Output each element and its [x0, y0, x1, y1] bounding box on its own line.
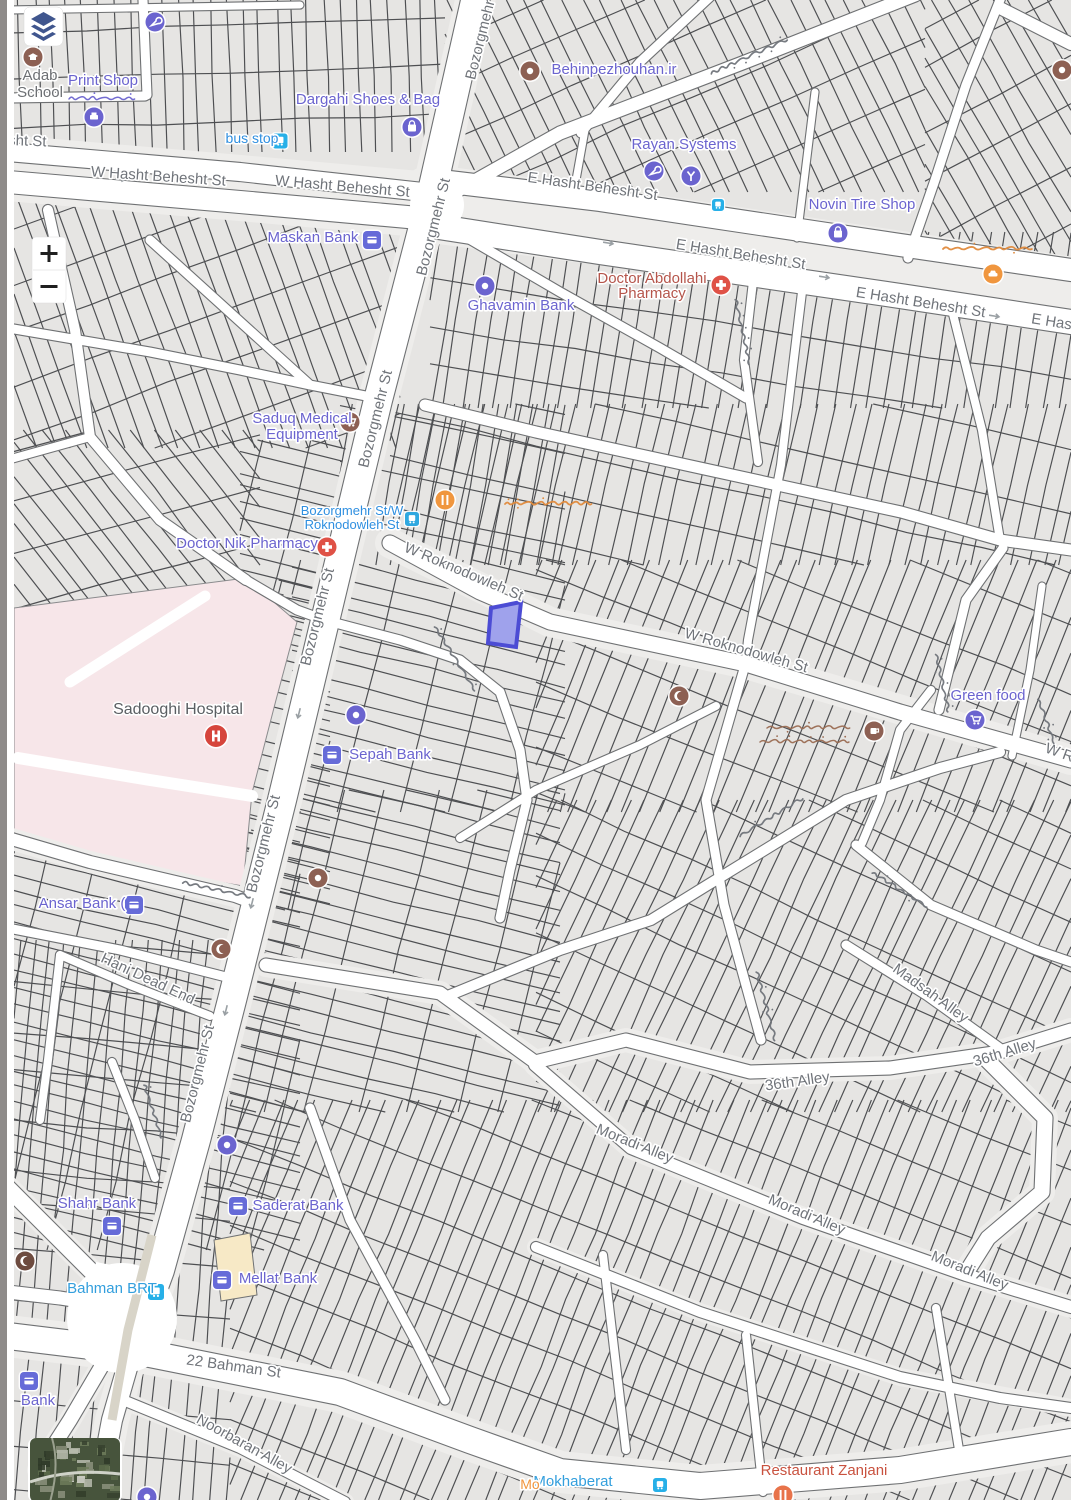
svg-text:Ghavamin Bank: Ghavamin Bank — [468, 297, 575, 314]
svg-text:Bank: Bank — [21, 1392, 56, 1409]
svg-text:Saderat Bank: Saderat Bank — [253, 1197, 344, 1214]
svg-text:Mellat Bank: Mellat Bank — [239, 1270, 318, 1287]
svg-text:Roknodowleh St: Roknodowleh St — [305, 517, 400, 532]
svg-text:Ansar Bank (: Ansar Bank ( — [39, 895, 126, 912]
svg-text:Sepah Bank: Sepah Bank — [349, 746, 431, 763]
svg-text:Sadooghi Hospital: Sadooghi Hospital — [113, 701, 243, 718]
svg-text:Dargahi Shoes & Bag: Dargahi Shoes & Bag — [296, 91, 440, 108]
svg-text:Saduq Medical: Saduq Medical — [252, 410, 351, 427]
svg-text:Restaurant Zanjani: Restaurant Zanjani — [761, 1462, 888, 1479]
svg-text:Bahman BRT: Bahman BRT — [67, 1280, 157, 1297]
svg-text:Behinpezhouhan.ir: Behinpezhouhan.ir — [551, 61, 676, 78]
svg-text:Doctor Nik Pharmacy: Doctor Nik Pharmacy — [176, 535, 318, 552]
svg-text:Green food: Green food — [950, 687, 1025, 704]
svg-text:School: School — [17, 84, 63, 101]
svg-text:Maskan Bank: Maskan Bank — [268, 229, 359, 246]
svg-text:Novin Tire Shop: Novin Tire Shop — [809, 196, 916, 213]
svg-text:Mo: Mo — [520, 1476, 540, 1492]
svg-text:Bozorgmehr St/W: Bozorgmehr St/W — [301, 503, 404, 518]
svg-text:Equipment: Equipment — [266, 426, 339, 443]
svg-text:Print Shop: Print Shop — [68, 72, 138, 89]
svg-text:Shahr Bank: Shahr Bank — [58, 1195, 137, 1212]
svg-text:Pharmacy: Pharmacy — [618, 285, 686, 302]
svg-text:Rayan Systems: Rayan Systems — [631, 136, 736, 153]
svg-text:Adab: Adab — [22, 67, 57, 84]
svg-text:Mokhaberat: Mokhaberat — [533, 1473, 613, 1490]
svg-text:bus stop: bus stop — [226, 130, 279, 146]
